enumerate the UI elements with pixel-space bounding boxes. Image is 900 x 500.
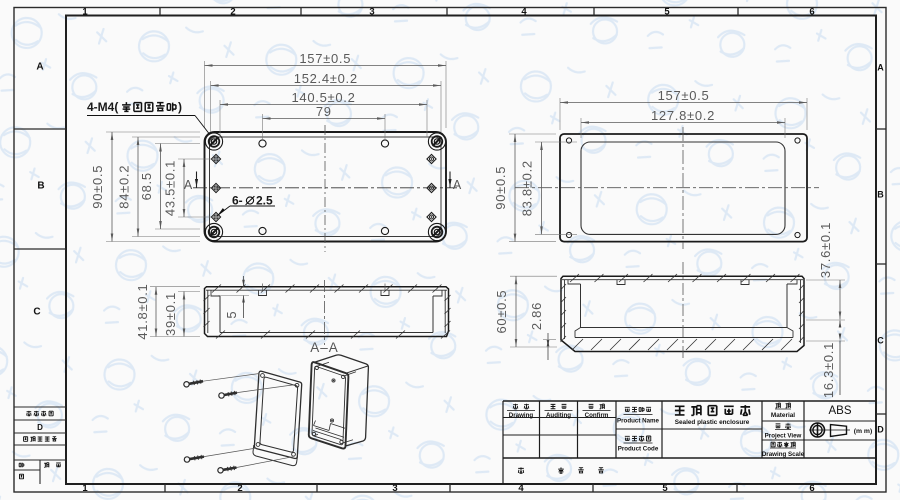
svg-text:83.8±0.2: 83.8±0.2 <box>520 160 535 216</box>
svg-text:Product Name: Product Name <box>617 418 660 425</box>
svg-text:157±0.5: 157±0.5 <box>299 51 351 66</box>
svg-text:1: 1 <box>82 483 88 494</box>
svg-text:5: 5 <box>224 311 239 318</box>
svg-text:A: A <box>453 178 462 192</box>
svg-text:68.5: 68.5 <box>139 172 154 200</box>
svg-text:4-M4(: 4-M4( <box>87 100 118 114</box>
svg-text:1: 1 <box>82 7 88 18</box>
svg-text:A: A <box>877 63 884 73</box>
svg-text:4: 4 <box>518 483 524 494</box>
svg-text:3: 3 <box>369 7 374 18</box>
svg-text:D: D <box>877 425 884 435</box>
svg-text:A: A <box>184 178 193 192</box>
svg-text:41.8±0.1: 41.8±0.1 <box>135 284 150 340</box>
svg-text:B: B <box>877 190 884 200</box>
svg-text:39±0.1: 39±0.1 <box>163 292 178 336</box>
svg-text:127.8±0.2: 127.8±0.2 <box>651 108 715 123</box>
svg-text:37.6±0.1: 37.6±0.1 <box>818 222 833 278</box>
svg-text:140.5±0.2: 140.5±0.2 <box>291 90 355 105</box>
svg-text:Confirm: Confirm <box>585 412 609 419</box>
svg-text:A: A <box>36 62 43 73</box>
svg-text:Project View: Project View <box>765 433 802 440</box>
svg-text:5: 5 <box>662 483 668 494</box>
svg-text:16.3±0.1: 16.3±0.1 <box>821 342 836 398</box>
svg-text:Product Code: Product Code <box>618 446 659 453</box>
svg-text:157±0.5: 157±0.5 <box>658 88 710 103</box>
svg-text:A–A: A–A <box>310 340 339 355</box>
svg-text:C: C <box>33 307 40 318</box>
svg-text:84±0.2: 84±0.2 <box>117 165 132 209</box>
svg-text:Sealed plastic enclosure: Sealed plastic enclosure <box>675 419 750 426</box>
svg-text:90±0.5: 90±0.5 <box>493 166 508 210</box>
svg-text:4: 4 <box>521 7 527 18</box>
svg-text:6: 6 <box>809 7 814 18</box>
svg-text:2: 2 <box>230 7 235 18</box>
svg-text:Auditing: Auditing <box>546 412 571 419</box>
svg-text:60±0.5: 60±0.5 <box>494 290 509 334</box>
svg-text:C: C <box>877 336 884 346</box>
svg-text:90±0.5: 90±0.5 <box>90 165 105 209</box>
svg-text:): ) <box>178 100 182 114</box>
svg-text:152.4±0.2: 152.4±0.2 <box>294 71 358 86</box>
svg-text:2.86: 2.86 <box>529 302 544 330</box>
svg-text:6-: 6- <box>232 194 243 208</box>
svg-text:Drawing: Drawing <box>509 412 534 419</box>
svg-text:(m m): (m m) <box>854 428 873 435</box>
svg-text:6: 6 <box>809 483 814 494</box>
svg-text:43.5±0.1: 43.5±0.1 <box>163 160 178 216</box>
svg-text:5: 5 <box>664 7 670 18</box>
svg-text:B: B <box>37 181 44 192</box>
svg-text:Material: Material <box>771 412 795 419</box>
svg-text:3: 3 <box>392 483 397 494</box>
svg-text:Drawing Scale: Drawing Scale <box>762 451 805 458</box>
svg-text:2.5: 2.5 <box>256 194 273 208</box>
svg-text:ABS: ABS <box>828 405 851 417</box>
svg-text:2: 2 <box>237 483 242 494</box>
svg-text:D: D <box>37 423 43 432</box>
svg-text:79: 79 <box>316 104 332 119</box>
